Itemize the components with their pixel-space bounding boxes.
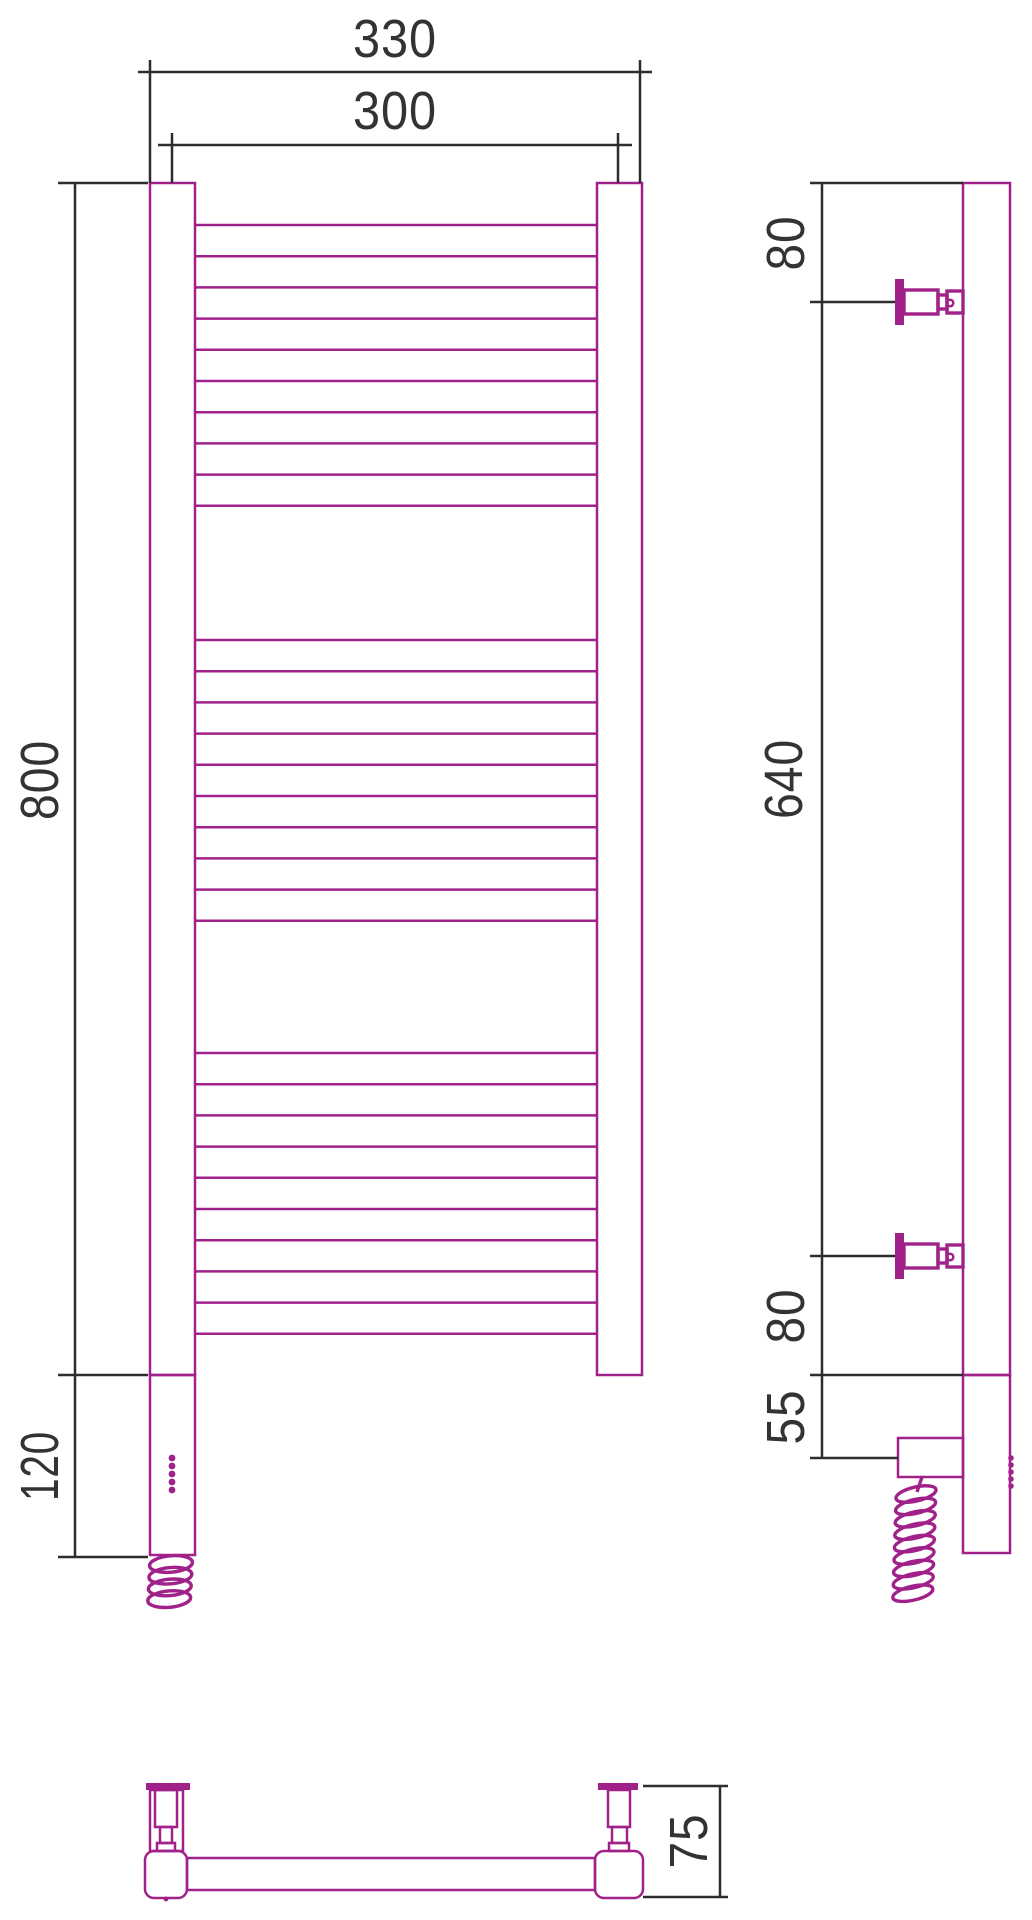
rung-lines xyxy=(195,225,597,1334)
front-led-dots xyxy=(169,1455,176,1494)
bottom-tube xyxy=(187,1858,595,1890)
dim-label-55: 55 xyxy=(756,1390,816,1445)
cable-coil-loop xyxy=(891,1582,934,1605)
front-view xyxy=(147,183,642,1609)
led-dot xyxy=(169,1471,176,1478)
led-dot xyxy=(169,1455,176,1462)
cable-coil-loop xyxy=(147,1589,191,1609)
cable-coil-loop xyxy=(892,1569,935,1592)
led-dot xyxy=(1008,1469,1014,1475)
front-left-post xyxy=(150,183,195,1375)
technical-drawing-canvas: 330 300 800 120 80 640 80 xyxy=(0,0,1032,1920)
led-dot xyxy=(1008,1483,1014,1489)
dim-label-80-bottom: 80 xyxy=(756,1289,816,1344)
side-post-bar xyxy=(963,183,1010,1375)
front-power-cable-coil xyxy=(147,1554,193,1609)
dimensions-layer: 330 300 800 120 80 640 80 xyxy=(10,9,963,1897)
bottom-led-dot xyxy=(164,1897,169,1902)
bottom-left-foot xyxy=(145,1851,187,1898)
side-heater-housing xyxy=(963,1375,1010,1553)
dim-label-75: 75 xyxy=(659,1814,719,1869)
bottom-left-bracket xyxy=(146,1783,190,1851)
dim-label-800: 800 xyxy=(10,740,70,820)
bottom-right-foot xyxy=(595,1851,643,1898)
front-right-post xyxy=(597,183,642,1375)
led-dot xyxy=(169,1479,176,1486)
dim-label-80-top: 80 xyxy=(756,216,816,271)
side-power-cable-coil xyxy=(891,1477,937,1605)
side-cable-entry-box xyxy=(898,1438,963,1477)
cable-coil-loop xyxy=(892,1557,935,1580)
wall-bracket-bottom xyxy=(895,1233,963,1279)
cable-coil-loop xyxy=(893,1532,936,1555)
cable-coil-loop xyxy=(894,1495,937,1518)
led-dot xyxy=(1008,1476,1014,1482)
bottom-view xyxy=(145,1783,643,1901)
led-dot xyxy=(1008,1462,1014,1468)
dim-depth: 75 xyxy=(643,1786,728,1897)
cable-coil-loop xyxy=(894,1507,937,1530)
dim-height-chain: 800 120 xyxy=(10,183,148,1557)
dim-label-300: 300 xyxy=(353,81,437,141)
cable-coil-loop xyxy=(894,1483,937,1506)
dim-label-640: 640 xyxy=(754,739,814,819)
dim-label-330: 330 xyxy=(353,9,437,69)
cable-coil-loop xyxy=(892,1545,935,1568)
led-dot xyxy=(1008,1455,1014,1461)
led-dot xyxy=(169,1487,176,1494)
dim-label-120: 120 xyxy=(10,1431,70,1501)
cable-coil-loop xyxy=(893,1520,936,1543)
bottom-right-bracket xyxy=(598,1783,638,1851)
side-view xyxy=(891,183,1014,1605)
dim-mounting-width: 300 xyxy=(158,81,632,183)
wall-bracket-top xyxy=(895,279,963,325)
led-dot xyxy=(169,1463,176,1470)
